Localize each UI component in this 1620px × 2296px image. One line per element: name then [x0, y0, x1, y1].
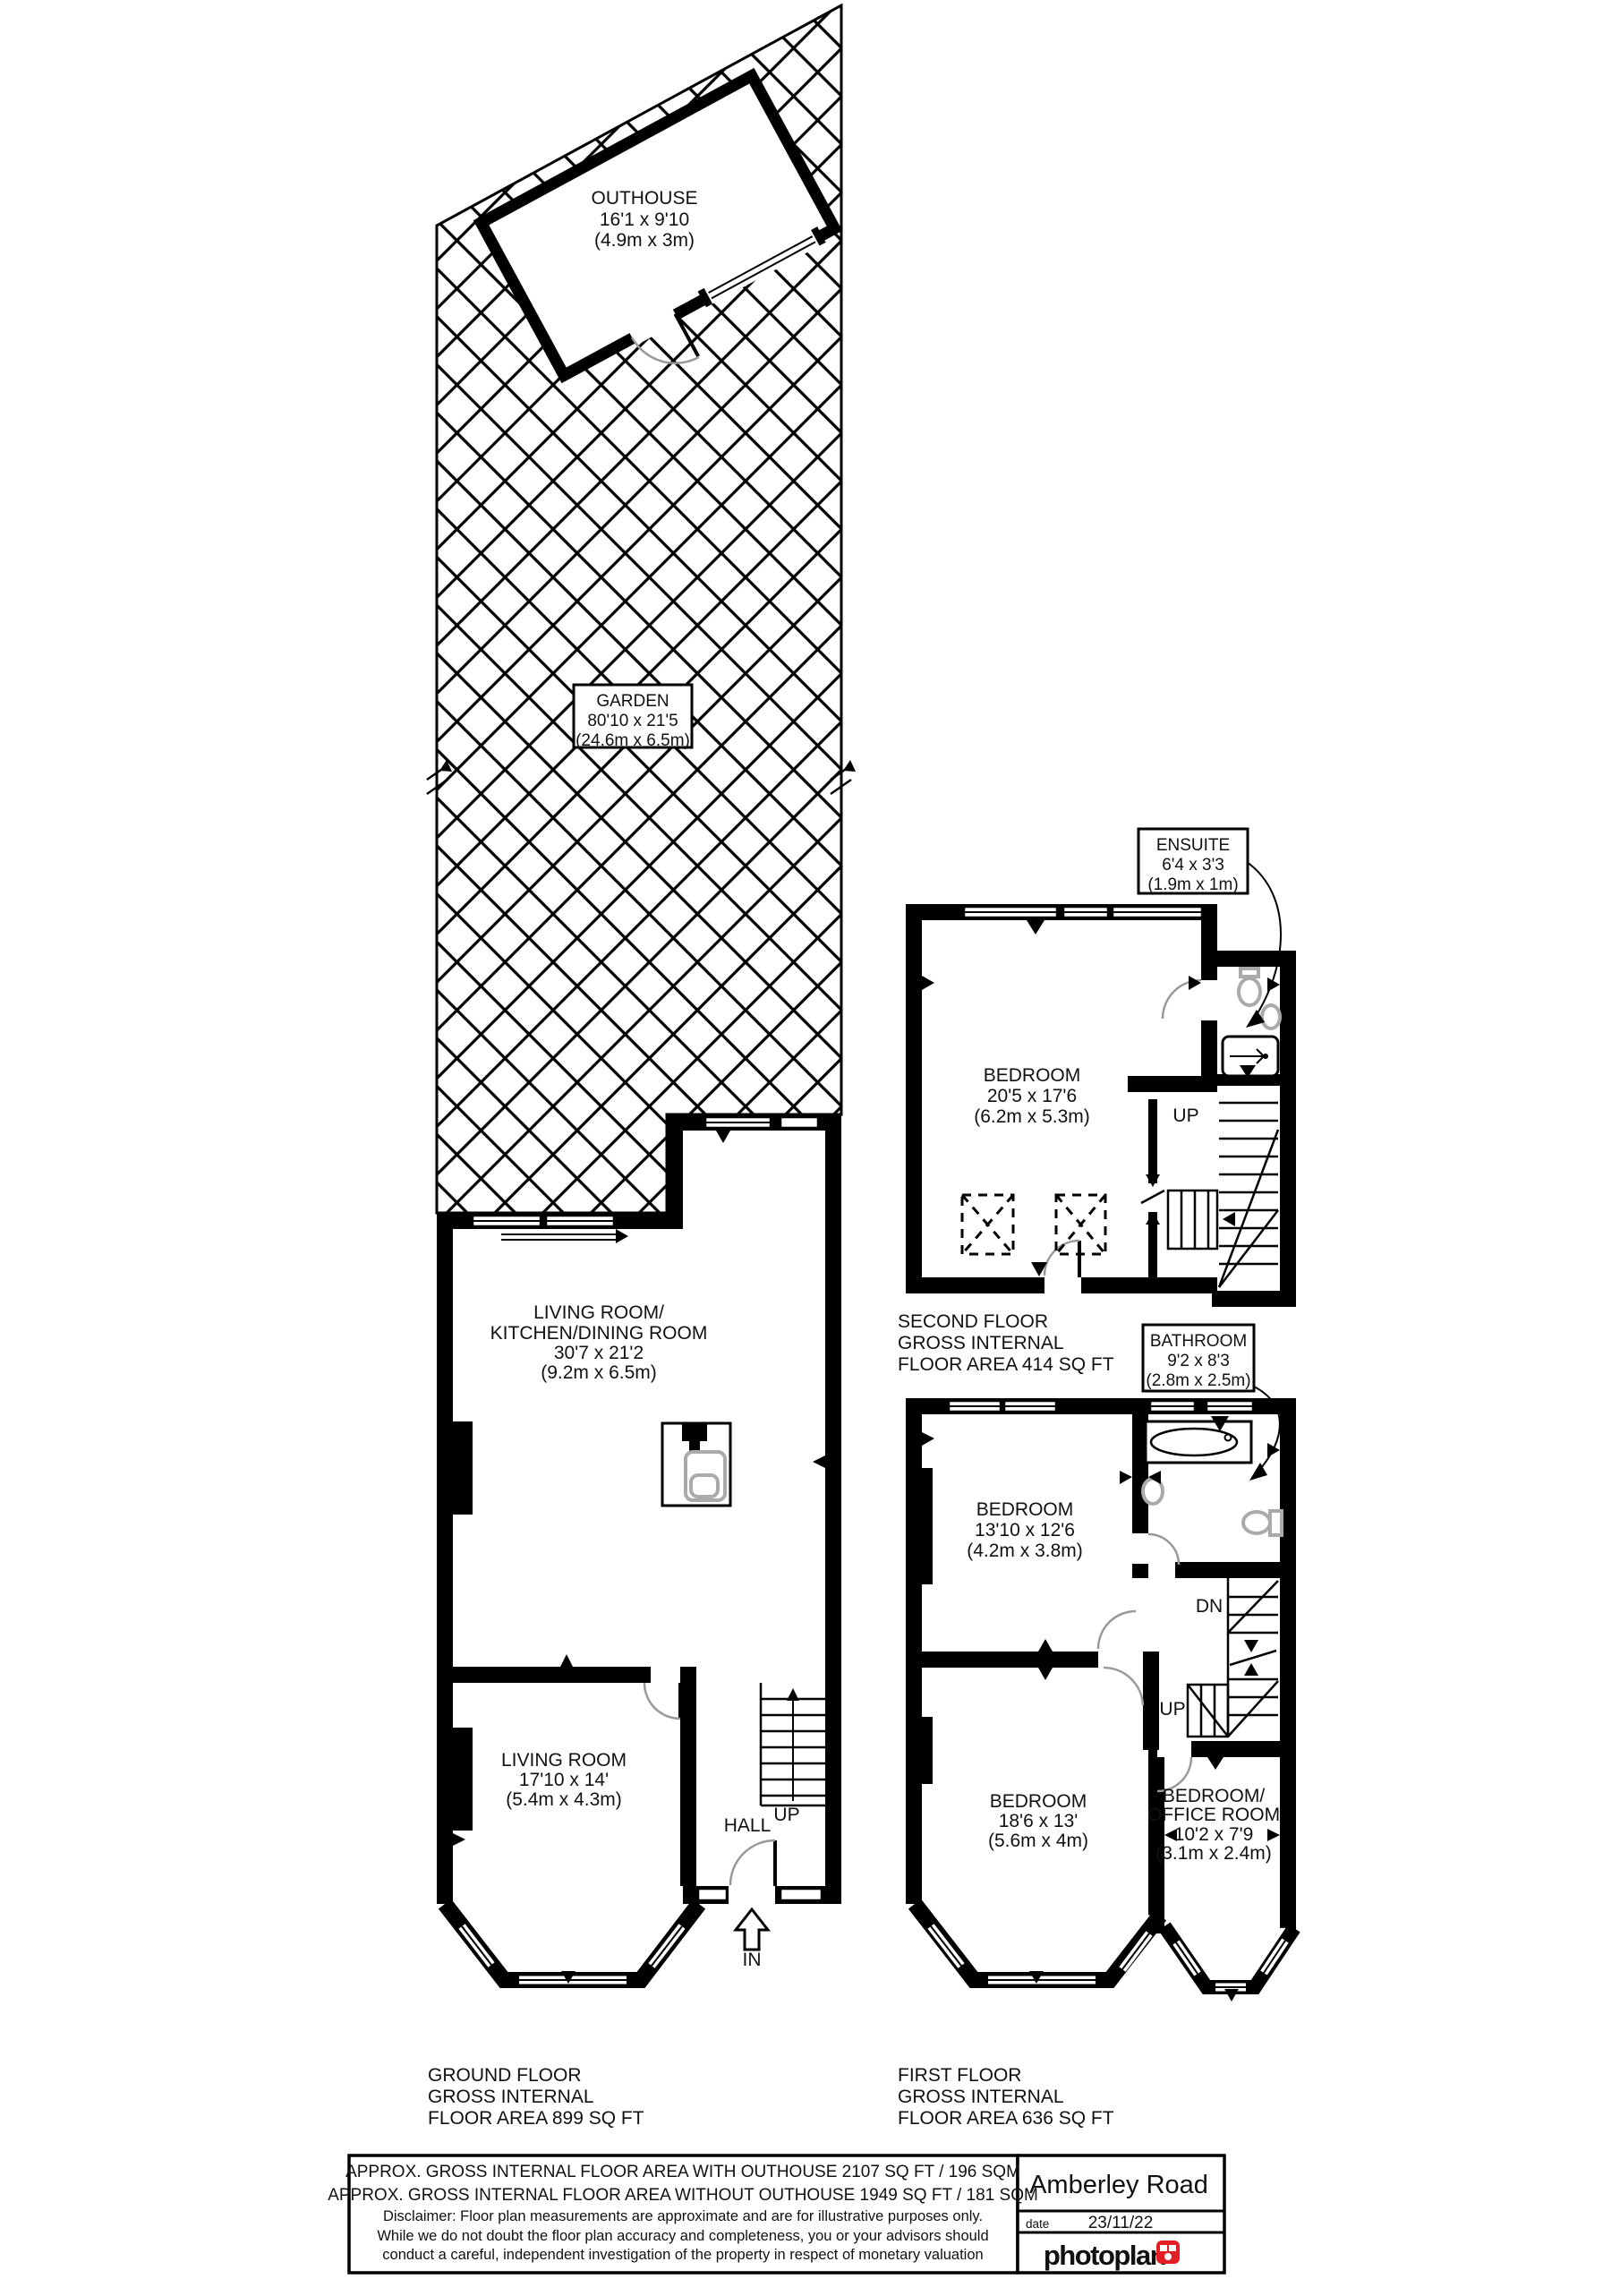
- chimney-breast: [922, 1468, 933, 1584]
- footer-date-label: date: [1026, 2217, 1049, 2231]
- footer-disclaimer-2: While we do not doubt the floor plan acc…: [377, 2228, 988, 2244]
- outhouse-name: OUTHOUSE: [591, 188, 697, 209]
- living-room-name: LIVING ROOM: [501, 1750, 627, 1771]
- chimney-breast: [453, 1728, 473, 1831]
- first-floor-caption-2: GROSS INTERNAL: [898, 2087, 1064, 2107]
- footer-disclaimer-1: Disclaimer: Floor plan measurements are …: [383, 2208, 983, 2224]
- bathroom-name: BATHROOM: [1150, 1332, 1247, 1351]
- living-room-size-ft: 17'10 x 14': [519, 1770, 609, 1790]
- bedroom-second-size-m: (6.2m x 5.3m): [974, 1106, 1090, 1127]
- ensuite-name: ENSUITE: [1156, 836, 1230, 855]
- bedroom-second-size-ft: 20'5 x 17'6: [987, 1086, 1077, 1106]
- ensuite-size-ft: 6'4 x 3'3: [1162, 856, 1224, 875]
- office-size-ft: 10'2 x 7'9: [1174, 1824, 1254, 1845]
- up-label-first: UP: [1159, 1699, 1185, 1720]
- ground-floor-caption-1: GROUND FLOOR: [428, 2065, 582, 2086]
- ground-floor-caption-3: FLOOR AREA 899 SQ FT: [428, 2108, 644, 2129]
- bedroom-front-size-m: (4.2m x 3.8m): [967, 1541, 1083, 1561]
- office-name2: OFFICE ROOM: [1147, 1805, 1280, 1825]
- bathroom-size-ft: 9'2 x 8'3: [1167, 1352, 1230, 1370]
- photoplan-logo: photoplan: [1044, 2240, 1180, 2271]
- chimney-breast: [453, 1421, 473, 1515]
- photoplan-logo-icon: [1156, 2241, 1180, 2264]
- bedroom-second-name: BEDROOM: [984, 1065, 1081, 1086]
- toilet-icon: [1239, 969, 1260, 1005]
- toilet-icon: [1243, 1511, 1282, 1535]
- ground-floor-caption-2: GROSS INTERNAL: [428, 2087, 594, 2107]
- hall-label: HALL: [724, 1815, 772, 1836]
- footer-disclaimer-3: conduct a careful, independent investiga…: [382, 2247, 983, 2263]
- bedroom-back-size-ft: 18'6 x 13': [999, 1811, 1079, 1831]
- chimney-breast: [922, 1717, 933, 1784]
- second-floor-caption-1: SECOND FLOOR: [898, 1311, 1048, 1332]
- first-floor-caption-3: FLOOR AREA 636 SQ FT: [898, 2108, 1114, 2129]
- first-floor-caption-1: FIRST FLOOR: [898, 2065, 1021, 2086]
- living-kitchen-size-ft: 30'7 x 21'2: [554, 1343, 644, 1363]
- bedroom-back-size-m: (5.6m x 4m): [988, 1831, 1088, 1851]
- basin-icon: [1262, 1005, 1280, 1029]
- garden-name: GARDEN: [596, 692, 669, 711]
- shower-icon: [1223, 1037, 1278, 1078]
- ensuite-size-m: (1.9m x 1m): [1147, 875, 1238, 894]
- footer-area-without: APPROX. GROSS INTERNAL FLOOR AREA WITHOU…: [328, 2186, 1038, 2205]
- bath-icon: [1146, 1421, 1251, 1463]
- bedroom-front-name: BEDROOM: [976, 1499, 1074, 1520]
- office-name1: BEDROOM/: [1163, 1786, 1266, 1806]
- living-kitchen-size-m: (9.2m x 6.5m): [541, 1362, 657, 1383]
- dn-label: DN: [1196, 1596, 1223, 1617]
- footer-address: Amberley Road: [1029, 2171, 1208, 2199]
- footer-date-value: 23/11/22: [1088, 2214, 1154, 2232]
- photoplan-logo-text: photoplan: [1044, 2240, 1166, 2271]
- kitchen-island: [662, 1423, 730, 1506]
- in-label: IN: [743, 1950, 762, 1970]
- bathroom-size-m: (2.8m x 2.5m): [1146, 1371, 1250, 1390]
- outhouse-size-m: (4.9m x 3m): [594, 230, 695, 251]
- footer: APPROX. GROSS INTERNAL FLOOR AREA WITH O…: [328, 2155, 1224, 2273]
- bedroom-front-size-ft: 13'10 x 12'6: [975, 1520, 1075, 1541]
- office-size-m: (3.1m x 2.4m): [1155, 1843, 1272, 1864]
- floor-plan-svg: GARDEN 80'10 x 21'5 (24.6m x 6.5m) OUTHO…: [0, 0, 1620, 2292]
- garden-label-box: GARDEN 80'10 x 21'5 (24.6m x 6.5m): [574, 685, 692, 750]
- outhouse-size-ft: 16'1 x 9'10: [600, 209, 689, 230]
- footer-area-with: APPROX. GROSS INTERNAL FLOOR AREA WITH O…: [345, 2163, 1020, 2181]
- bedroom-back-name: BEDROOM: [990, 1791, 1087, 1812]
- up-label-second: UP: [1172, 1105, 1198, 1126]
- living-kitchen-name2: KITCHEN/DINING ROOM: [490, 1323, 708, 1344]
- living-kitchen-name1: LIVING ROOM/: [533, 1302, 664, 1323]
- second-floor-caption-3: FLOOR AREA 414 SQ FT: [898, 1354, 1114, 1375]
- living-room-size-m: (5.4m x 4.3m): [506, 1789, 622, 1810]
- second-floor-windows: [964, 907, 1202, 918]
- second-floor-caption-2: GROSS INTERNAL: [898, 1333, 1064, 1353]
- garden-size-ft: 80'10 x 21'5: [587, 712, 678, 730]
- garden-size-m: (24.6m x 6.5m): [576, 731, 690, 750]
- up-label-ground: UP: [773, 1805, 799, 1825]
